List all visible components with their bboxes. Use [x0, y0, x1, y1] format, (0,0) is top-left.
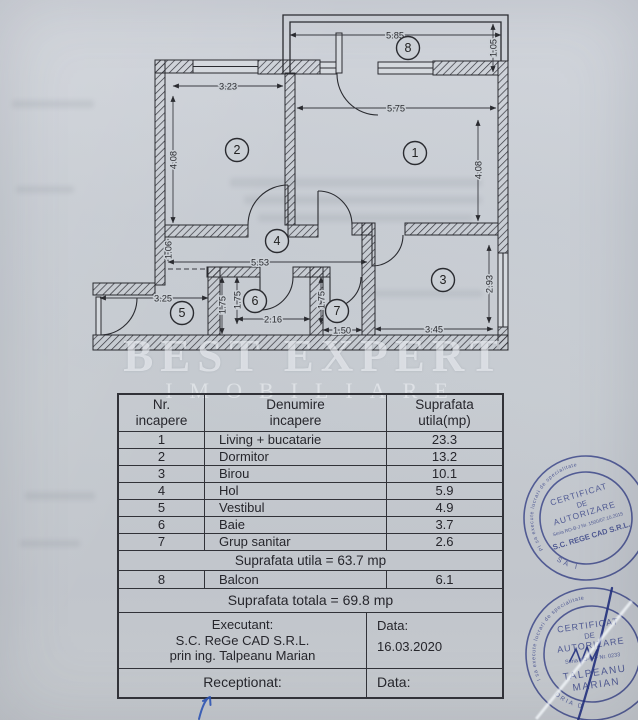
- dim-label: 1.75: [217, 296, 227, 314]
- table-row: 2 Dormitor 13.2: [119, 448, 502, 465]
- dim-label: 1.05: [488, 39, 498, 57]
- table-row: 4 Hol 5.9: [119, 482, 502, 499]
- windows: [193, 60, 508, 327]
- cell-nr: 5: [119, 500, 205, 516]
- room-number: 6: [252, 294, 259, 308]
- dim-label: 3.23: [219, 82, 237, 92]
- cell-name: Vestibul: [205, 500, 387, 516]
- room-number: 3: [440, 273, 447, 287]
- dim-label: 5.75: [387, 104, 405, 114]
- cell-area: 5.9: [387, 483, 502, 499]
- dim-label: 1.75: [232, 291, 242, 309]
- header-denumire: Denumireincapere: [205, 395, 387, 431]
- table-row: 7 Grup sanitar 2.6: [119, 533, 502, 550]
- table-row: 5 Vestibul 4.9: [119, 499, 502, 516]
- cell-name: Dormitor: [205, 449, 387, 465]
- cell-nr: 1: [119, 432, 205, 448]
- table-header-row: Nr.incapere Denumireincapere Suprafataut…: [119, 395, 502, 431]
- dim-label: 2.93: [484, 275, 494, 293]
- dim-label: 1.06: [163, 241, 173, 259]
- dim-label: 2.16: [264, 315, 282, 325]
- scanned-document-page: 5.85 1.05 3.23 4.08 5.75 4.08 1.06 5.53 …: [0, 0, 638, 720]
- subtotal-row: Suprafata utila = 63.7 mp: [119, 550, 502, 570]
- room-number: 1: [412, 146, 419, 160]
- table-row: 6 Baie 3.7: [119, 516, 502, 533]
- subtotal-text: Suprafata utila = 63.7 mp: [119, 551, 502, 570]
- table-row: 3 Birou 10.1: [119, 465, 502, 482]
- data-value: 16.03.2020: [377, 639, 502, 654]
- receptionat-row: Receptionat: Data:: [119, 668, 502, 697]
- receptionat-label: Receptionat:: [119, 669, 367, 697]
- total-text: Suprafata totala = 69.8 mp: [119, 589, 502, 612]
- dim-label: 3.25: [154, 294, 172, 304]
- balcony-row: 8 Balcon 6.1: [119, 570, 502, 588]
- cell-nr: 3: [119, 466, 205, 482]
- data-cell: Data: 16.03.2020: [367, 613, 502, 668]
- floor-plan: 5.85 1.05 3.23 4.08 5.75 4.08 1.06 5.53 …: [85, 8, 545, 388]
- dim-label: 4.08: [473, 161, 483, 179]
- stamp-certificat-2: Persoana fizica autorizata de ANCPI sa e…: [500, 566, 638, 720]
- room-number: 4: [274, 234, 281, 248]
- cell-nr: 4: [119, 483, 205, 499]
- cell-name: Balcon: [205, 571, 387, 588]
- areas-table: Nr.incapere Denumireincapere Suprafataut…: [117, 393, 504, 699]
- dim-label: 1.75: [316, 291, 326, 309]
- cell-area: 2.6: [387, 534, 502, 550]
- cell-area: 13.2: [387, 449, 502, 465]
- total-row: Suprafata totala = 69.8 mp: [119, 588, 502, 612]
- header-suprafata: Suprafatautila(mp): [387, 395, 502, 431]
- room-number: 7: [334, 304, 341, 318]
- data-label: Data:: [377, 618, 502, 633]
- cell-area: 23.3: [387, 432, 502, 448]
- cell-area: 10.1: [387, 466, 502, 482]
- cell-nr: 7: [119, 534, 205, 550]
- cell-name: Living + bucatarie: [205, 432, 387, 448]
- cell-name: Birou: [205, 466, 387, 482]
- cell-nr: 2: [119, 449, 205, 465]
- cell-name: Hol: [205, 483, 387, 499]
- cell-nr: 6: [119, 517, 205, 533]
- receptionat-data-label: Data:: [367, 669, 502, 697]
- bleed-smudge: [25, 492, 95, 500]
- cell-area: 6.1: [387, 571, 502, 588]
- cell-name: Grup sanitar: [205, 534, 387, 550]
- header-nr: Nr.incapere: [119, 395, 205, 431]
- bleed-smudge: [12, 100, 94, 108]
- dim-label: 3.45: [425, 325, 443, 335]
- cell-area: 4.9: [387, 500, 502, 516]
- dim-label: 1.50: [333, 326, 351, 336]
- table-row: 1 Living + bucatarie 23.3: [119, 431, 502, 448]
- dim-label: 5.53: [251, 258, 269, 268]
- executant-row: Executant: S.C. ReGe CAD S.R.L. prin ing…: [119, 612, 502, 668]
- executant-engineer: prin ing. Talpeanu Marian: [119, 648, 366, 664]
- room-number: 2: [234, 143, 241, 157]
- room-number: 8: [405, 41, 412, 55]
- room-number: 5: [179, 306, 186, 320]
- bleed-smudge: [20, 540, 80, 547]
- cell-area: 3.7: [387, 517, 502, 533]
- walls: [93, 60, 508, 350]
- executant-cell: Executant: S.C. ReGe CAD S.R.L. prin ing…: [119, 613, 367, 668]
- executant-company: S.C. ReGe CAD S.R.L.: [119, 633, 366, 649]
- bleed-smudge: [16, 186, 74, 193]
- executant-label: Executant:: [119, 617, 366, 633]
- pen-mark: [192, 694, 226, 720]
- cell-nr: 8: [119, 571, 205, 588]
- dim-label: 4.08: [168, 151, 178, 169]
- cell-name: Baie: [205, 517, 387, 533]
